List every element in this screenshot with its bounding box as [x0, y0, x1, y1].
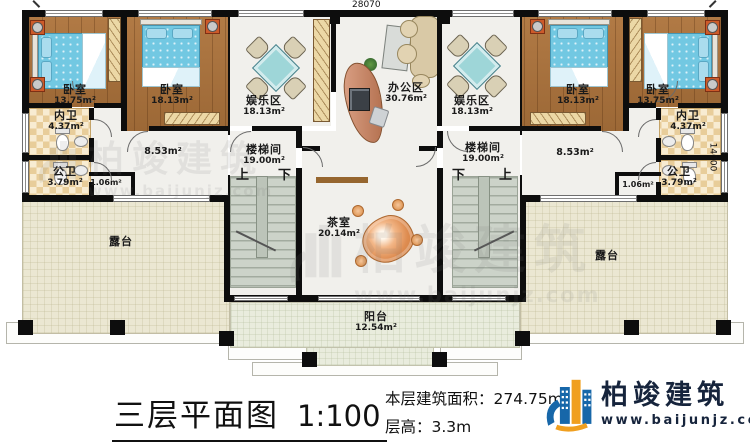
window	[540, 195, 637, 202]
stool	[411, 234, 423, 246]
corner-tick	[709, 0, 716, 7]
attic-ladder	[108, 18, 121, 82]
wall-segment	[296, 168, 302, 302]
company-name: 柏竣建筑	[601, 382, 750, 410]
window	[538, 10, 612, 17]
dimension-right: 14000	[707, 143, 717, 172]
window	[238, 10, 304, 17]
stool	[392, 199, 404, 211]
window	[45, 10, 103, 17]
sink	[662, 136, 676, 147]
window	[318, 296, 420, 301]
sofa-cushion	[397, 44, 417, 64]
computer-monitor	[349, 88, 370, 111]
drawing-title: 三层平面图 1:100	[112, 390, 387, 442]
stair-down-label: 下	[452, 164, 465, 183]
room-label-bath: 内卫 4.37m²	[658, 110, 718, 132]
toilet	[56, 134, 69, 151]
wall-segment	[522, 126, 601, 131]
window	[22, 161, 29, 193]
nightstand	[705, 77, 720, 92]
room-label-terrace: 露台	[579, 250, 635, 262]
stair-down-label: 下	[278, 164, 291, 183]
column	[440, 10, 450, 24]
window	[138, 10, 212, 17]
window	[721, 113, 728, 153]
wall-segment	[331, 17, 336, 92]
dimension-top: 28070	[352, 0, 381, 10]
pillar	[302, 352, 317, 367]
sink	[74, 136, 88, 147]
nightstand	[705, 20, 720, 35]
terrace-left-floor	[22, 200, 230, 334]
company-website: www.baijunjz.com	[601, 413, 750, 428]
pillar	[219, 331, 234, 346]
window	[113, 195, 210, 202]
room-label-office: 办公区 30.76m²	[374, 82, 438, 104]
terrace-right-floor	[520, 200, 728, 334]
room-label-entertainment: 娱乐区 18.13m²	[233, 95, 295, 117]
floorplan-page: { "title_block": { "title": "三层平面图", "sc…	[0, 0, 750, 444]
room-label-terrace: 露台	[93, 236, 149, 248]
pillar	[716, 320, 731, 335]
window	[452, 296, 506, 301]
room-label-entertainment: 娱乐区 18.13m²	[441, 95, 503, 117]
room-label-bedroom: 卧室 13.75m²	[623, 84, 693, 106]
tea-counter	[316, 177, 368, 183]
stair-up-label: 上	[499, 164, 512, 183]
stool	[352, 205, 364, 217]
company-logo: 柏竣建筑 www.baijunjz.com	[541, 374, 750, 436]
stair-up-label: 上	[236, 164, 249, 183]
balcony-step-floor	[306, 348, 434, 366]
window	[234, 296, 288, 301]
column	[330, 10, 340, 24]
area-label-hall: 8.53m²	[545, 147, 605, 158]
plan-scale: 1:100	[297, 399, 381, 433]
plan-title: 三层平面图	[114, 390, 279, 435]
wardrobe	[164, 112, 220, 125]
room-label-bath: 内卫 4.37m²	[36, 110, 96, 132]
area-label-closet: 1.06m²	[616, 180, 660, 189]
corner-tick	[33, 0, 40, 7]
room-label-stairwell: 楼梯间 19.00m²	[450, 142, 516, 164]
room-label-bedroom: 卧室 13.75m²	[40, 84, 110, 106]
area-label-closet: 1.06m²	[84, 178, 128, 187]
sofa-cushion	[400, 20, 418, 38]
pillar	[432, 352, 447, 367]
company-logo-icon	[541, 374, 595, 436]
pillow	[41, 37, 52, 58]
wall-segment	[89, 138, 94, 162]
wall-segment	[437, 168, 443, 302]
nightstand	[30, 20, 45, 35]
stool	[355, 255, 367, 267]
room-label-tea: 茶室 20.14m²	[307, 217, 371, 239]
attic-ladder	[313, 19, 330, 122]
room-label-bedroom: 卧室 18.13m²	[543, 84, 613, 106]
pillow	[146, 28, 167, 39]
pillow	[698, 37, 709, 58]
wall-segment	[469, 126, 526, 131]
room-label-balcony: 阳台 12.54m²	[344, 311, 408, 333]
area-label-hall: 8.53m²	[130, 146, 196, 157]
pillow	[172, 28, 193, 39]
window	[452, 10, 514, 17]
nightstand	[205, 19, 220, 34]
pillar	[624, 320, 639, 335]
wall-segment	[437, 131, 443, 148]
wall-segment	[623, 17, 629, 131]
wall-segment	[252, 126, 302, 131]
floor-height-value: 3.3m	[432, 418, 472, 436]
toilet	[681, 134, 694, 151]
attic-ladder	[629, 18, 642, 82]
nightstand	[530, 19, 545, 34]
pillow	[557, 28, 578, 39]
window	[22, 113, 29, 153]
pillow	[583, 28, 604, 39]
wardrobe	[530, 112, 586, 125]
window	[721, 161, 728, 193]
wall-segment	[121, 17, 127, 131]
pillar	[110, 320, 125, 335]
wall-segment	[29, 155, 89, 160]
room-label-bedroom: 卧室 18.13m²	[137, 84, 207, 106]
wall-segment	[149, 126, 228, 131]
pillar	[515, 331, 530, 346]
pillar	[18, 320, 33, 335]
window	[647, 10, 705, 17]
wall-segment	[131, 176, 135, 195]
